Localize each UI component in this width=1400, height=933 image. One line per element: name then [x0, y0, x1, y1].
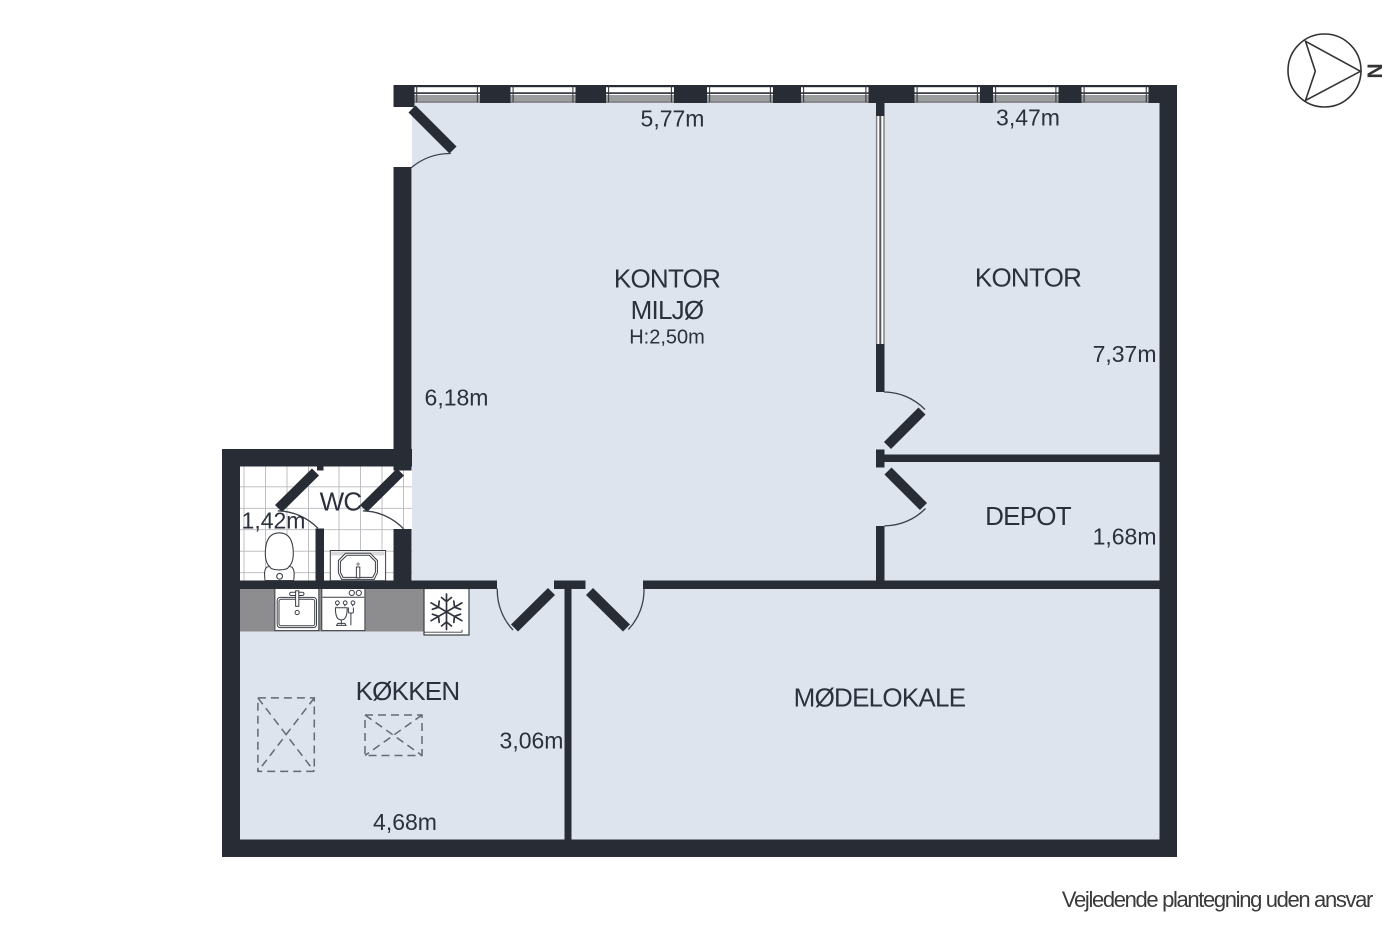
svg-text:7,37m: 7,37m: [1093, 341, 1157, 367]
svg-text:H:2,50m: H:2,50m: [629, 327, 705, 349]
svg-text:3,47m: 3,47m: [996, 105, 1060, 131]
svg-text:KØKKEN: KØKKEN: [356, 676, 460, 706]
svg-text:1,68m: 1,68m: [1093, 524, 1157, 550]
svg-text:5,77m: 5,77m: [641, 106, 705, 132]
svg-text:1,42m: 1,42m: [242, 508, 306, 534]
svg-text:WC: WC: [320, 487, 362, 517]
svg-text:KONTOR: KONTOR: [975, 263, 1081, 293]
svg-text:DEPOT: DEPOT: [985, 501, 1072, 531]
svg-text:6,18m: 6,18m: [425, 385, 489, 411]
svg-text:N: N: [1363, 63, 1386, 78]
svg-text:MILJØ: MILJØ: [631, 295, 704, 325]
svg-text:4,68m: 4,68m: [373, 809, 437, 835]
svg-text:Vejledende plantegning uden an: Vejledende plantegning uden ansvar: [1062, 887, 1373, 912]
svg-text:3,06m: 3,06m: [500, 728, 564, 754]
svg-text:MØDELOKALE: MØDELOKALE: [794, 683, 966, 713]
svg-text:KONTOR: KONTOR: [614, 264, 720, 294]
